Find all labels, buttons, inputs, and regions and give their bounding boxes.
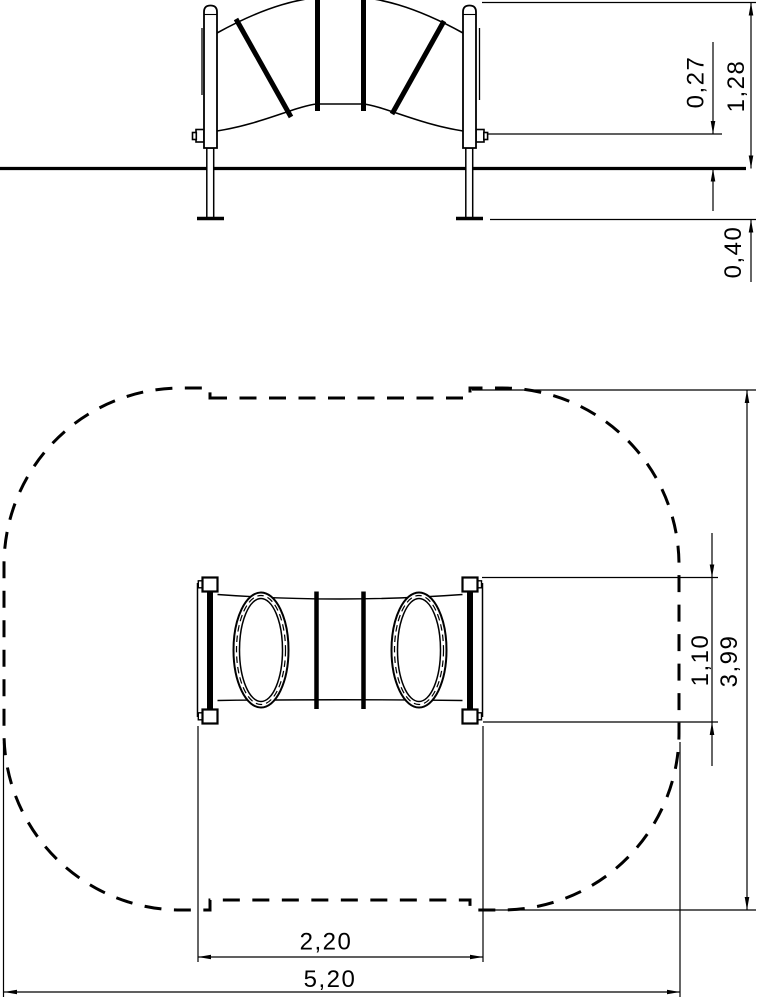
foundations [197, 148, 483, 219]
arrow-left-icon [4, 990, 17, 995]
dim-text-net-rise: 0,27 [683, 56, 710, 109]
post-plate-bottom-left [203, 710, 218, 724]
arrow-up-icon [749, 220, 754, 233]
post-plate-top-left [203, 578, 218, 592]
arrow-up-icon [745, 390, 750, 403]
dim-text-frame-length: 2,20 [300, 929, 353, 956]
plan-view: 1,10 3,99 2,20 5,20 [4, 388, 757, 997]
post-plate-top-right [463, 578, 478, 592]
arrow-down-icon [745, 897, 750, 910]
posts [204, 6, 476, 149]
left-clamp [196, 130, 204, 143]
technical-drawing-sheet: 0,27 1,28 0,40 [0, 0, 759, 1000]
right-post [463, 6, 476, 149]
arrow-up-icon [710, 722, 715, 735]
net-diagonal-tube-left [236, 19, 291, 117]
dim-text-zone-width: 3,99 [716, 635, 743, 688]
net-arch-left-plan [234, 593, 289, 708]
arrow-right-icon [470, 955, 483, 960]
dim-text-frame-width: 1,10 [687, 634, 714, 687]
arch-inner-edge [240, 599, 283, 702]
equipment-plan [198, 578, 483, 724]
dim-text-zone-length: 5,20 [304, 966, 357, 993]
safety-zone-outline [4, 388, 679, 910]
arrow-down-icon [749, 156, 754, 169]
plan-extension-lines [4, 390, 757, 997]
left-post [204, 6, 217, 149]
post-clamps [193, 130, 488, 143]
right-clamp [476, 130, 484, 143]
arrow-down-icon [710, 565, 715, 578]
elevation-dimension-arrows [711, 3, 754, 233]
left-clamp-bolt [193, 133, 197, 140]
right-post-leg [466, 148, 473, 218]
net-arch-right-plan [392, 593, 447, 708]
right-clamp-bolt [484, 133, 488, 140]
elevation-extension-lines [482, 3, 756, 220]
arrow-left-icon [198, 955, 211, 960]
net-bottom-edge [217, 104, 463, 131]
left-post-leg [207, 148, 214, 218]
dim-text-total-height: 1,28 [723, 60, 750, 113]
dim-text-foundation-depth: 0,40 [720, 226, 747, 279]
arch-inner-edge [398, 599, 441, 702]
arrow-up-icon [711, 169, 716, 182]
arrow-right-icon [667, 990, 680, 995]
arrow-up-icon [749, 3, 754, 16]
playground-equipment-drawing: 0,27 1,28 0,40 [0, 0, 759, 1000]
plan-dimension-arrows [4, 390, 749, 994]
climbing-net [202, 0, 480, 131]
plan-dimension-lines [4, 390, 747, 992]
elevation-view: 0,27 1,28 0,40 [0, 0, 756, 282]
net-top-edge [217, 0, 463, 33]
net-diagonal-tube-right [392, 21, 444, 114]
post-plate-bottom-right [463, 710, 478, 724]
plan-dimension-labels: 1,10 3,99 2,20 5,20 [300, 634, 743, 993]
arrow-down-icon [711, 121, 716, 134]
